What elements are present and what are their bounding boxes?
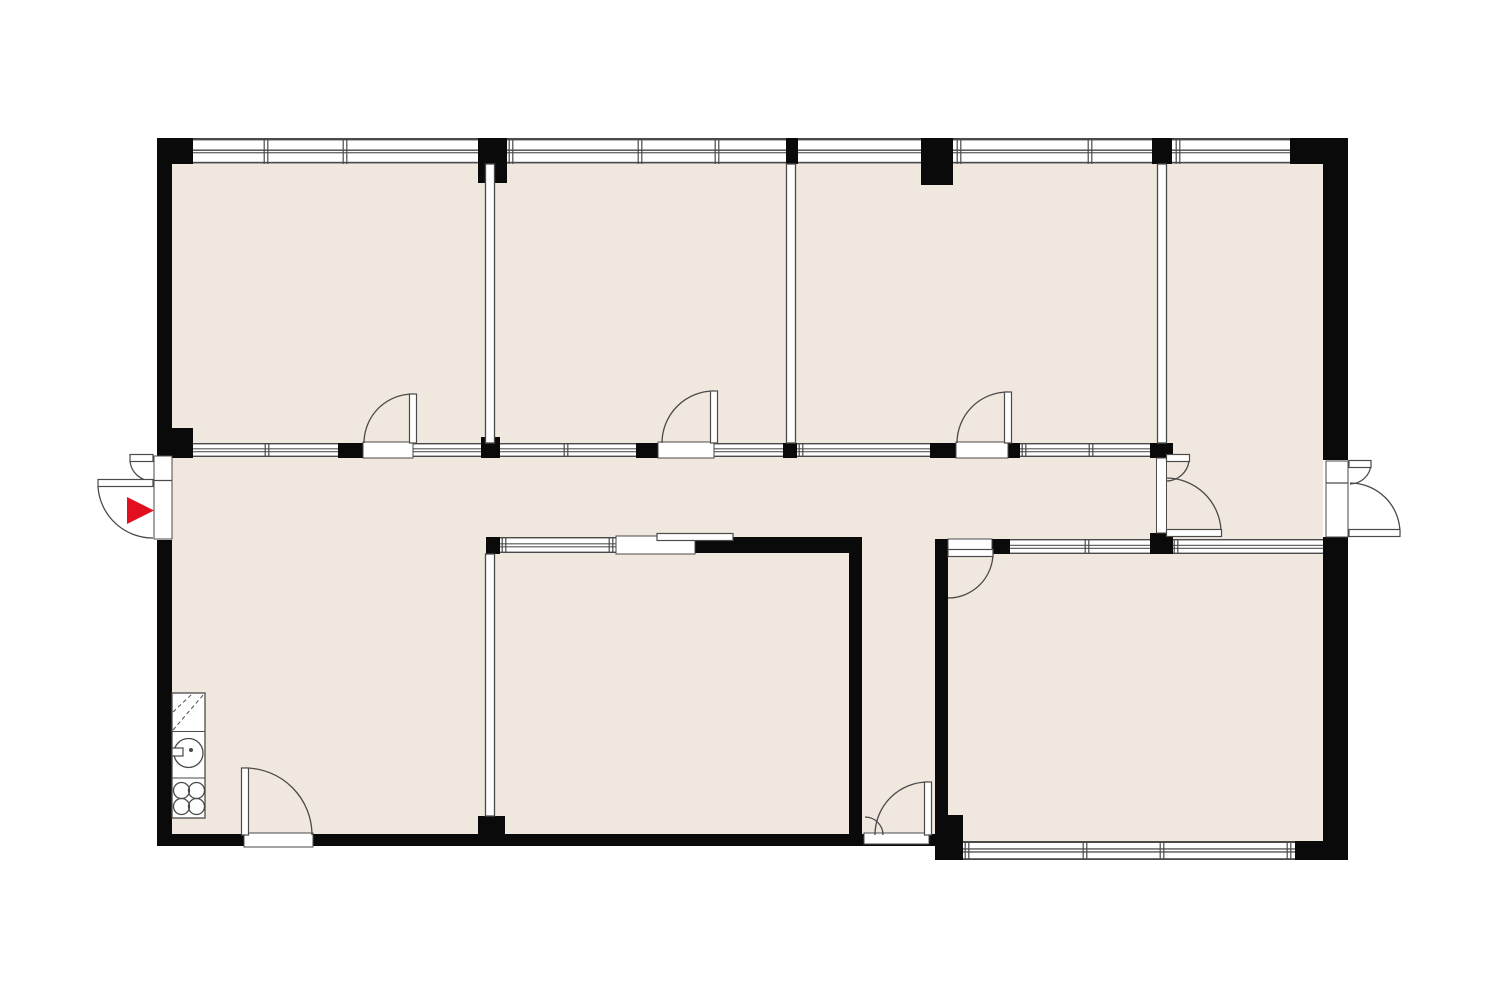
window-band-bottom-line-2 — [963, 851, 1295, 852]
wall-right-upper — [1323, 138, 1348, 460]
door-leaf-vestibule — [925, 782, 932, 835]
door-leaf-room3 — [1005, 392, 1012, 443]
glazed-band-midroom-top-line-3 — [500, 552, 616, 553]
window-band-top-mullion-5b — [960, 138, 961, 164]
kitchen-fixtures — [172, 693, 205, 818]
door-arc-entrance-left-small — [130, 461, 152, 481]
window-band-bottom-mullion-1b — [1086, 841, 1087, 860]
sink-drain-dot — [189, 748, 193, 752]
glazed-band-corridor-mullion-1b — [567, 443, 568, 457]
tap-icon — [172, 748, 183, 756]
pier-partition-4-bottom — [478, 816, 505, 835]
glazed-band-bottomright-top-b-line-3 — [1173, 553, 1323, 554]
partition-room1-room2 — [486, 164, 495, 443]
entrance-frame-right — [1326, 461, 1348, 537]
glazed-band-bottomright-top-a-line-3 — [1010, 553, 1150, 554]
glazed-band-bottomright-top-a-mullion-0b — [1088, 539, 1089, 554]
window-band-bottom-line-0 — [963, 841, 1295, 843]
glazed-band-corridor-mullion-3b — [1025, 443, 1026, 457]
window-band-bottom-mullion-3a — [1287, 841, 1288, 860]
glazed-band-corridor-mullion-4b — [1092, 443, 1093, 457]
window-band-top-mullion-2a — [509, 138, 510, 164]
door-opening-lobby — [1157, 458, 1167, 533]
sliding-door-leaf — [657, 534, 733, 541]
window-band-top — [192, 138, 1290, 164]
glazed-band-midroom-top-line-2 — [500, 546, 616, 547]
door-opening-bottom-left — [244, 833, 313, 847]
window-band-top-mullion-1b — [346, 138, 347, 164]
glazed-band-midroom-top-line-1 — [500, 543, 616, 544]
post-corridor-3 — [930, 443, 956, 458]
glazed-band-bottomright-top-b-mullion-0a — [1174, 539, 1175, 554]
post-corridor-left — [157, 428, 193, 458]
glazed-band-bottomright-top-a-line-2 — [1010, 548, 1150, 549]
window-band-bottom-mullion-2a — [1160, 841, 1161, 860]
glazed-band-bottomright-top-b-line-2 — [1173, 548, 1323, 549]
partition-midroom-left — [486, 554, 495, 816]
glazed-band-bottomright-top-a-glass — [1010, 539, 1150, 554]
entrance-right-leaf-large — [1349, 530, 1400, 537]
glazed-band-midroom-top-mullion-1b — [612, 537, 613, 553]
glazed-band-corridor-mullion-0a — [265, 443, 266, 457]
window-band-bottom-mullion-0a — [965, 841, 966, 860]
column-top — [921, 138, 953, 185]
wall-vestibule-right — [935, 539, 948, 815]
glazed-band-midroom-top-glass — [500, 537, 616, 553]
glazed-band-bottomright-top-b-line-0 — [1173, 539, 1323, 540]
door-opening-room3 — [956, 442, 1008, 458]
window-band-top-line-1 — [192, 150, 1290, 151]
wall-midroom-right — [849, 537, 862, 843]
wall-corner-top-left — [157, 138, 193, 164]
window-band-top-mullion-2b — [512, 138, 513, 164]
window-band-bottom-glass — [963, 841, 1295, 860]
window-band-bottom-mullion-3b — [1290, 841, 1291, 860]
window-band-top-mullion-1a — [343, 138, 344, 164]
glazed-band-bottomright-top-b-mullion-0b — [1177, 539, 1178, 554]
window-band-bottom-mullion-2b — [1163, 841, 1164, 860]
entrance-left-leaf-small — [130, 455, 153, 462]
glazed-band-corridor-mullion-2a — [799, 443, 800, 457]
pier-top-2 — [786, 138, 798, 164]
window-band-top-mullion-6a — [1088, 138, 1089, 164]
door-opening-room1 — [363, 442, 413, 458]
glazed-band-bottomright-top-a-mullion-0a — [1085, 539, 1086, 554]
post-midroom-left — [486, 537, 500, 554]
partition-room3-lobby — [1158, 164, 1167, 443]
window-band-top-mullion-5a — [957, 138, 958, 164]
entrance-frame-left — [154, 456, 172, 539]
glazed-band-corridor-mullion-4a — [1089, 443, 1090, 457]
wall-left-upper — [157, 138, 172, 455]
entry-arrow-icon — [127, 497, 154, 524]
post-bottomright-door — [992, 539, 1010, 554]
glazed-band-midroom-top-line-0 — [500, 537, 616, 538]
door-leaf-bottom-left — [242, 768, 249, 835]
glazed-band-midroom-top — [500, 537, 616, 553]
post-corridor-4 — [1008, 443, 1020, 458]
glazed-band-corridor-mullion-1a — [564, 443, 565, 457]
door-opening-vestibule — [864, 833, 929, 844]
window-band-top-mullion-7a — [1176, 138, 1177, 164]
floor-areas — [172, 164, 1323, 842]
window-band-bottom-line-3 — [963, 858, 1295, 860]
window-band-top-mullion-4b — [718, 138, 719, 164]
post-partition-2 — [783, 443, 797, 458]
window-band-top-line-0 — [192, 138, 1290, 140]
floorplan-svg — [0, 0, 1500, 1000]
glazed-band-corridor-mullion-3a — [1022, 443, 1023, 457]
post-corridor-2 — [636, 443, 658, 458]
pier-top-3 — [1152, 138, 1172, 164]
window-band-top-mullion-0a — [264, 138, 265, 164]
lobby-door-leaf-large — [1167, 530, 1222, 537]
door-leaf-room2 — [711, 391, 718, 443]
wall-left-lower — [157, 540, 172, 846]
window-band-bottom — [963, 841, 1295, 860]
glazed-band-corridor-mullion-2b — [802, 443, 803, 457]
glazed-band-bottomright-top-b — [1173, 539, 1323, 554]
window-band-top-glass — [192, 138, 1290, 164]
glazed-band-corridor-mullion-0b — [268, 443, 269, 457]
window-band-top-line-2 — [192, 152, 1290, 153]
door-opening-room2 — [658, 442, 714, 458]
post-corridor-1 — [338, 443, 363, 458]
door-leaf-bottomright — [948, 550, 993, 557]
window-band-top-mullion-3a — [638, 138, 639, 164]
glazed-band-bottomright-top-b-line-1 — [1173, 545, 1323, 546]
glazed-band-midroom-top-mullion-0a — [502, 537, 503, 553]
window-band-top-mullion-0b — [267, 138, 268, 164]
glazed-band-bottomright-top-b-glass — [1173, 539, 1323, 554]
window-band-bottom-mullion-0b — [968, 841, 969, 860]
wall-right-lower — [1323, 537, 1348, 860]
window-band-top-mullion-6b — [1091, 138, 1092, 164]
entrance-right-leaf-small — [1349, 461, 1371, 468]
door-arc-entrance-right-large — [1350, 483, 1400, 533]
glazed-band-bottomright-top-a — [1010, 539, 1150, 554]
entrance-left-leaf-large — [98, 480, 153, 487]
window-band-bottom-line-1 — [963, 848, 1295, 849]
door-leaf-room1 — [410, 394, 417, 443]
floor-bottom-right-room — [948, 554, 1323, 842]
glazed-band-midroom-top-mullion-0b — [505, 537, 506, 553]
window-band-top-line-3 — [192, 162, 1290, 164]
window-band-top-mullion-4a — [715, 138, 716, 164]
glazed-band-bottomright-top-a-line-0 — [1010, 539, 1150, 540]
lobby-door-leaf-small — [1167, 455, 1190, 462]
wall-step-block — [935, 815, 963, 860]
window-band-top-mullion-7b — [1179, 138, 1180, 164]
floorplan-canvas — [0, 0, 1500, 1000]
glazed-band-midroom-top-mullion-1a — [609, 537, 610, 553]
wall-corner-bottom-right — [1295, 841, 1348, 860]
entry-marker — [127, 497, 154, 524]
window-band-top-mullion-3b — [641, 138, 642, 164]
window-band-bottom-mullion-1a — [1083, 841, 1084, 860]
glazed-band-bottomright-top-a-line-1 — [1010, 545, 1150, 546]
partition-room2-room3 — [787, 164, 796, 443]
